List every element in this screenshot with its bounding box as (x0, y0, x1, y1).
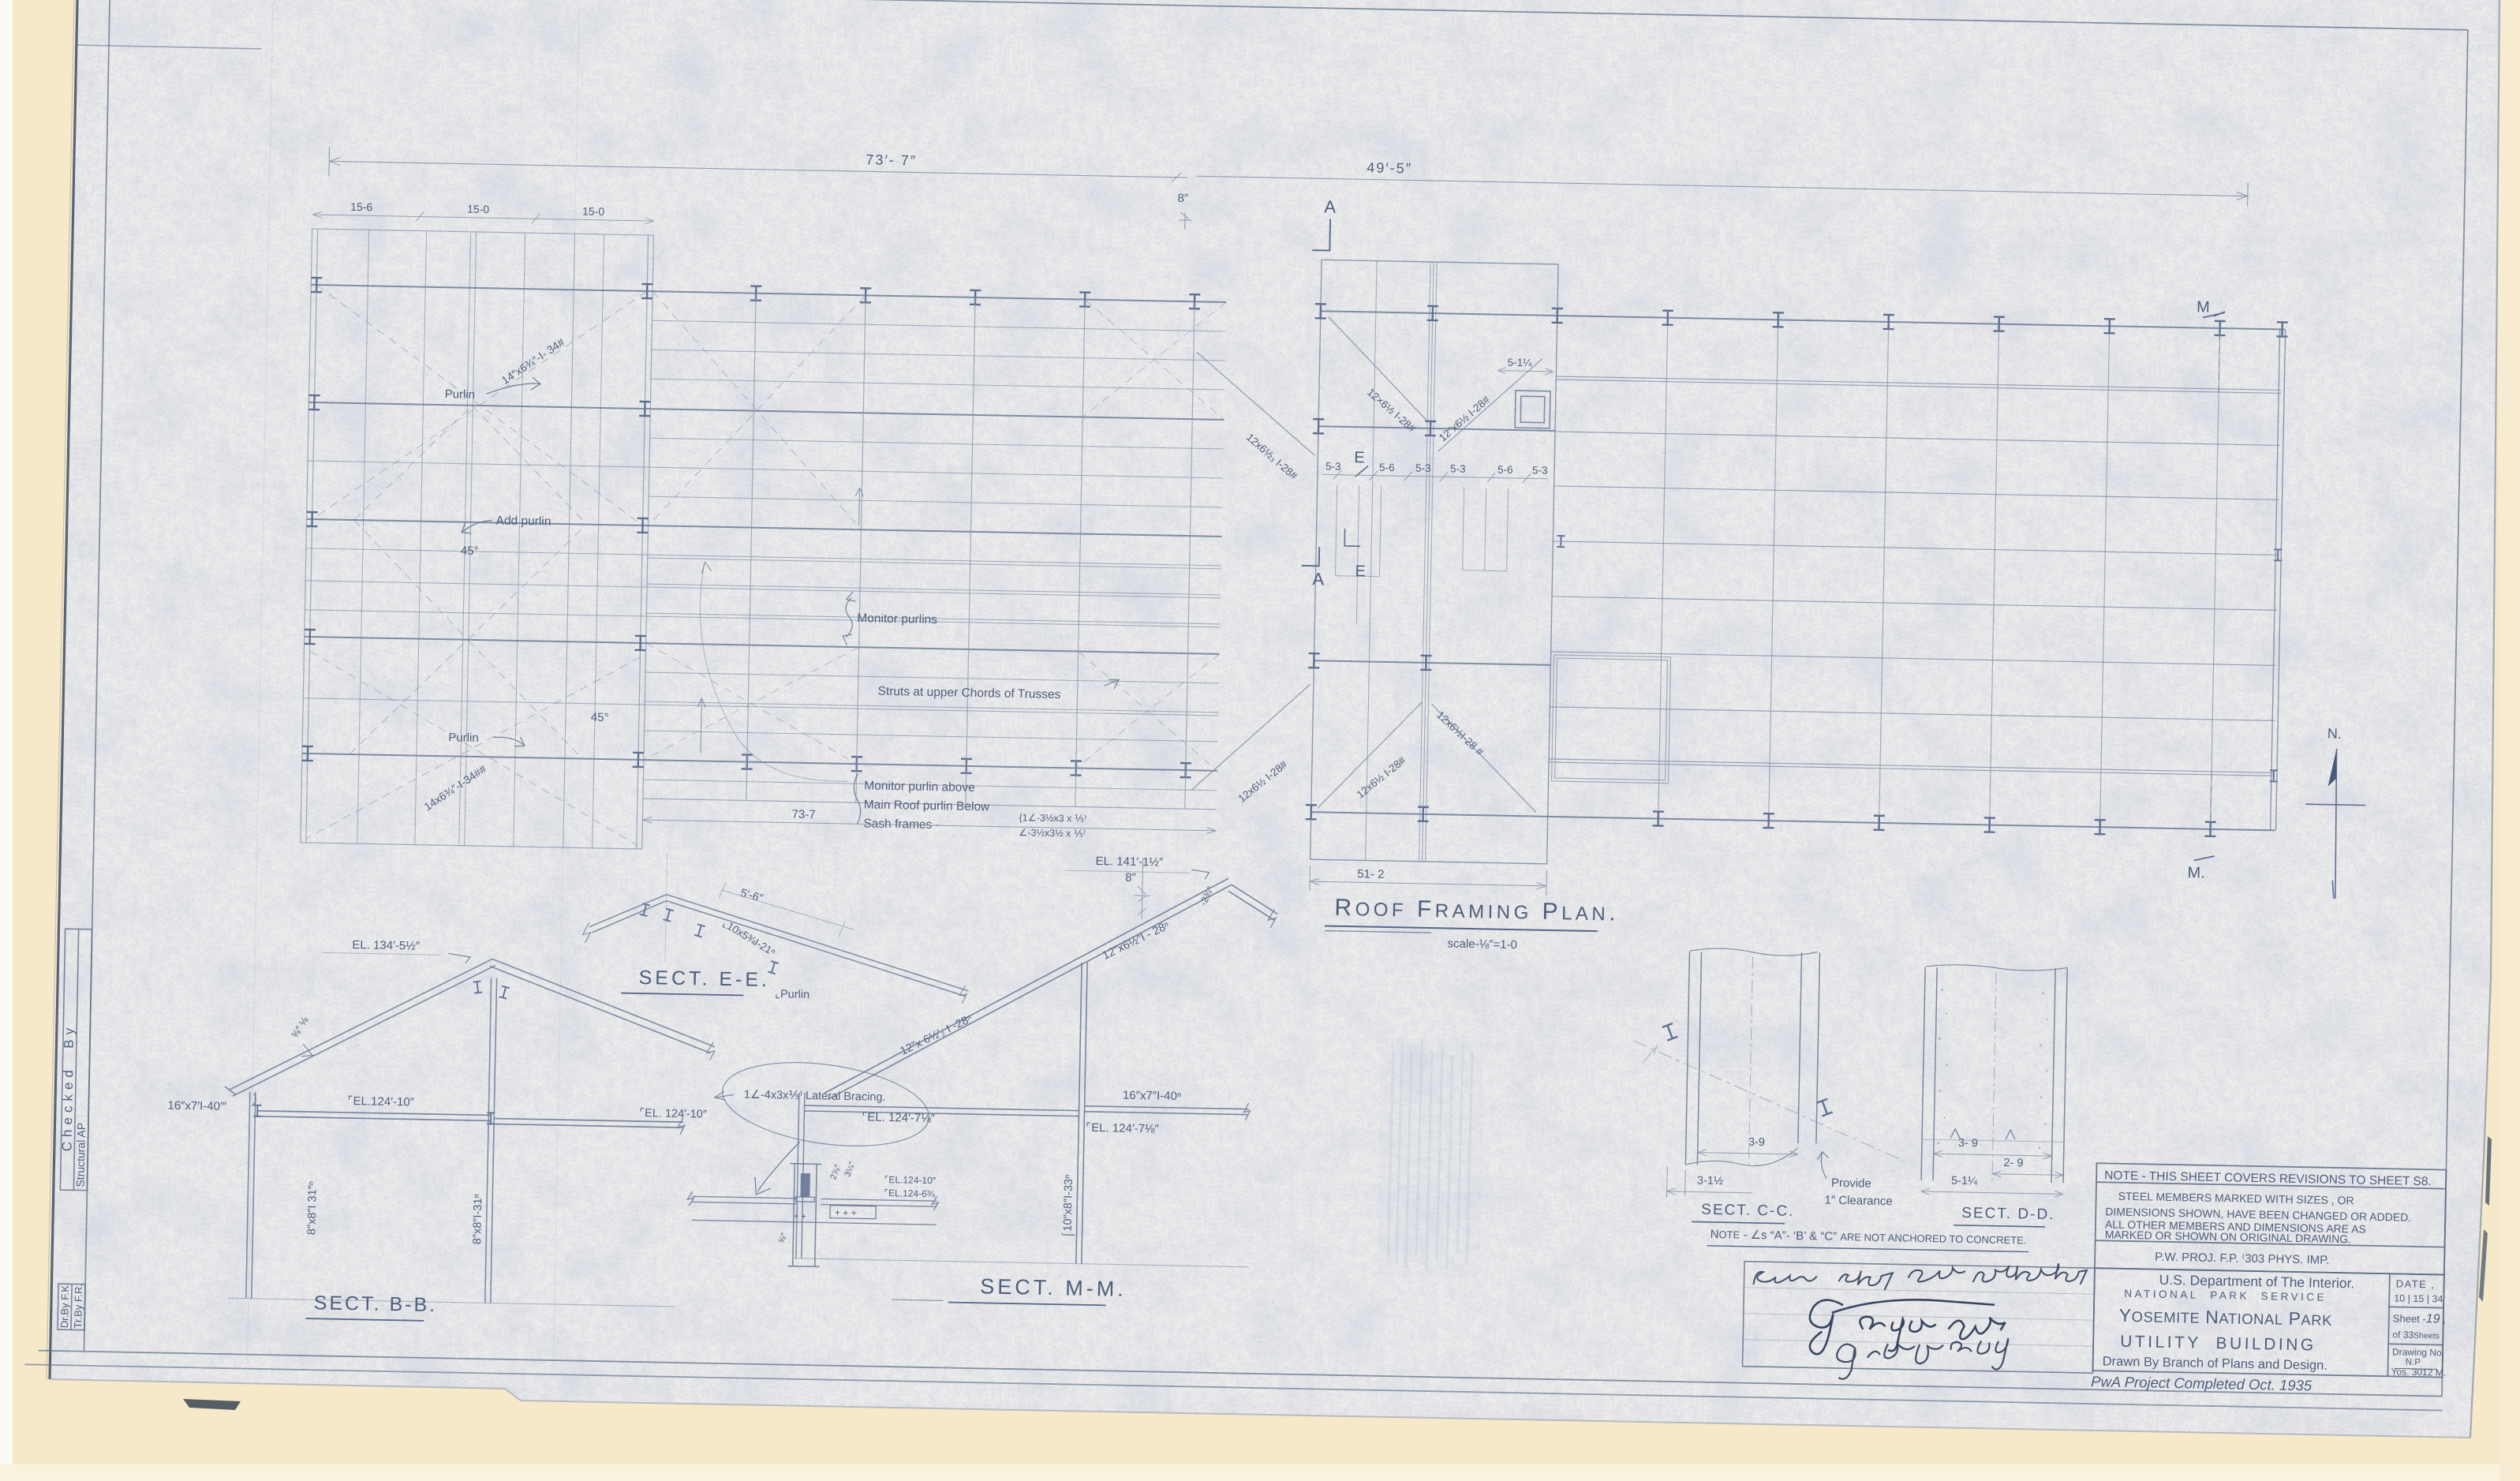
svg-text:{1∠-3½x3 x ⅕⁾: {1∠-3½x3 x ⅕⁾ (1019, 812, 1086, 825)
svg-text:8″: 8″ (1177, 192, 1189, 205)
svg-text:Dr.By F.K.: Dr.By F.K. (58, 1282, 71, 1328)
svg-text:Structural AP: Structural AP (73, 1123, 88, 1187)
svg-text:of 33Sheets: of 33Sheets (2392, 1329, 2440, 1341)
svg-text:UTILITY BUILDING: UTILITY BUILDING (2120, 1333, 2316, 1355)
svg-text:5-3: 5-3 (1415, 462, 1431, 474)
svg-text:49′-5″: 49′-5″ (1367, 159, 1412, 176)
svg-text:∠-3½x3½ x ⅕⁾: ∠-3½x3½ x ⅕⁾ (1019, 827, 1086, 840)
svg-text:SECT. E-E.: SECT. E-E. (638, 967, 770, 991)
svg-text:16″x7″I-40ⁿ: 16″x7″I-40ⁿ (1123, 1089, 1182, 1103)
svg-text:DATE ,: DATE , (2396, 1277, 2436, 1290)
svg-text:1″ Clearance: 1″ Clearance (1824, 1194, 1893, 1209)
svg-text:Purlin: Purlin (448, 731, 479, 745)
svg-text:⌞Purlin: ⌞Purlin (775, 988, 809, 1001)
svg-text:Tr.By F.R.: Tr.By F.R. (72, 1284, 84, 1329)
svg-text:5-1¼: 5-1¼ (1508, 357, 1533, 369)
svg-text:3-9: 3-9 (1748, 1136, 1765, 1149)
svg-text:E: E (1355, 563, 1366, 580)
svg-text:3- 9: 3- 9 (1958, 1137, 1978, 1150)
svg-text:⌠10″x8″I-33ⁿ: ⌠10″x8″I-33ⁿ (1061, 1175, 1076, 1239)
svg-text:⌜EL. 124′-7⅛″: ⌜EL. 124′-7⅛″ (862, 1110, 936, 1125)
svg-text:8″x8″I 31″ⁿ: 8″x8″I 31″ⁿ (305, 1181, 319, 1236)
svg-text:EL. 134′-5½″: EL. 134′-5½″ (352, 938, 421, 953)
svg-text:SECT. B-B.: SECT. B-B. (313, 1292, 437, 1316)
svg-text:Main Roof purlin Below: Main Roof purlin Below (864, 798, 990, 813)
svg-text:3-1½: 3-1½ (1697, 1175, 1723, 1188)
svg-text:SECT. D-D.: SECT. D-D. (1961, 1205, 2055, 1223)
svg-text:51- 2: 51- 2 (1357, 867, 1385, 881)
svg-text:⌜EL. 124′-10″: ⌜EL. 124′-10″ (639, 1107, 707, 1121)
svg-text:15-0: 15-0 (467, 203, 490, 216)
svg-text:45°: 45° (591, 711, 609, 724)
svg-text:8″: 8″ (1125, 871, 1137, 884)
svg-text:5-3: 5-3 (1532, 464, 1548, 476)
svg-text:73-7: 73-7 (791, 808, 815, 822)
svg-text:5-3: 5-3 (1450, 462, 1466, 474)
svg-text:+ +: + + (794, 1212, 806, 1221)
svg-text:Monitor purlin above: Monitor purlin above (864, 779, 975, 795)
svg-text:1∠-4x3x⅕⁾ Lateral Bracing.: 1∠-4x3x⅕⁾ Lateral Bracing. (744, 1089, 886, 1104)
svg-text:5-3: 5-3 (1325, 460, 1341, 472)
svg-text:5-6: 5-6 (1379, 462, 1395, 473)
svg-text:+ + +: + + + (835, 1207, 857, 1219)
svg-text:Sheet -19 ,: Sheet -19 , (2393, 1311, 2446, 1326)
svg-text:⌜EL.124-10″: ⌜EL.124-10″ (884, 1174, 937, 1186)
svg-text:2- 9: 2- 9 (2003, 1157, 2023, 1169)
svg-text:⌜EL.124-6¾: ⌜EL.124-6¾ (884, 1187, 936, 1199)
svg-text:⌜EL.124′-10″: ⌜EL.124′-10″ (347, 1094, 414, 1109)
svg-text:EL. 141′-1½″: EL. 141′-1½″ (1095, 855, 1164, 870)
svg-text:⌜EL. 124′-7⅛″: ⌜EL. 124′-7⅛″ (1086, 1121, 1160, 1136)
svg-text:Add purlin: Add purlin (495, 514, 551, 528)
svg-text:45°: 45° (461, 544, 479, 558)
svg-text:Purlin: Purlin (444, 387, 475, 402)
svg-text:A: A (1312, 569, 1324, 589)
svg-text:SECT. C-C.: SECT. C-C. (1701, 1202, 1795, 1220)
svg-text:15-6: 15-6 (350, 200, 373, 214)
svg-text:8″x8″I-31ⁿ: 8″x8″I-31ⁿ (471, 1194, 484, 1244)
svg-text:A: A (1324, 196, 1336, 216)
svg-text:SECT. M-M.: SECT. M-M. (980, 1274, 1127, 1301)
svg-text:Drawing No,: Drawing No, (2392, 1346, 2444, 1358)
svg-text:15-0: 15-0 (582, 204, 605, 218)
svg-text:Yos. 3012 M.: Yos. 3012 M. (2391, 1366, 2446, 1378)
svg-text:scale-⅛″=1-0: scale-⅛″=1-0 (1447, 937, 1517, 952)
svg-text:E: E (1354, 449, 1365, 466)
svg-text:N.: N. (2327, 726, 2342, 742)
svg-text:16″x7′I-40′″: 16″x7′I-40′″ (167, 1099, 227, 1113)
svg-text:M.: M. (2187, 864, 2205, 881)
svg-text:10 | 15 | 34: 10 | 15 | 34 (2394, 1292, 2443, 1304)
svg-text:Provide: Provide (1831, 1176, 1871, 1191)
svg-text:73′- 7″: 73′- 7″ (866, 151, 917, 168)
svg-text:5-6: 5-6 (1497, 464, 1513, 476)
svg-text:5-1¼: 5-1¼ (1951, 1175, 1978, 1188)
svg-text:Monitor purlins: Monitor purlins (857, 611, 937, 626)
svg-text:M: M (2197, 298, 2210, 316)
